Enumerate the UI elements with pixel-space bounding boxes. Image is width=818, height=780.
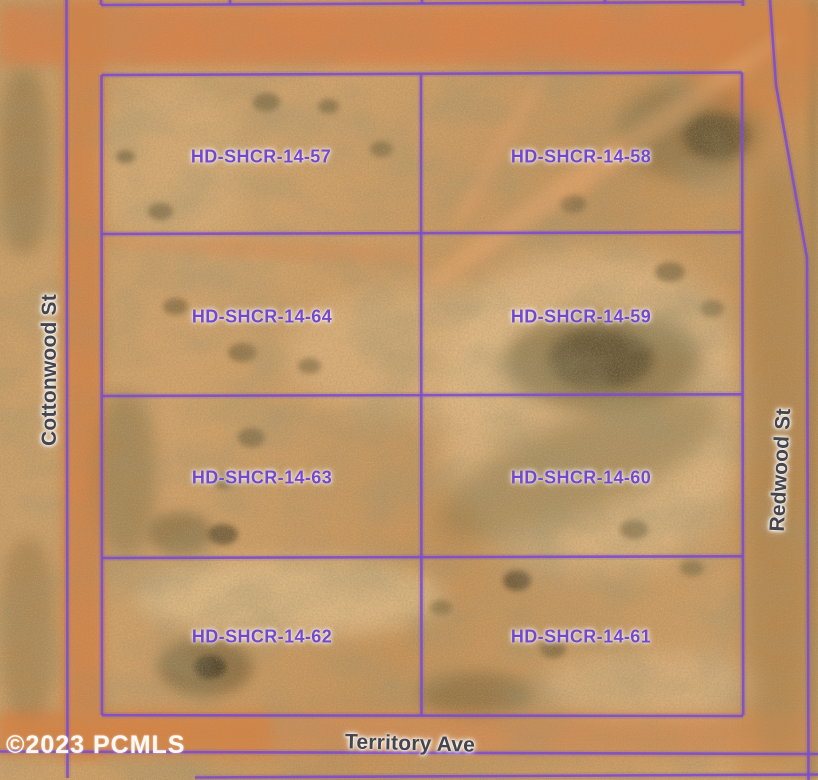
parcel-label: HD-SHCR-14-57	[191, 147, 331, 168]
parcel-label: HD-SHCR-14-63	[192, 468, 332, 489]
street-label-territory: Territory Ave	[345, 730, 476, 757]
watermark: ©2023 PCMLS	[6, 731, 185, 760]
parcel-label: HD-SHCR-14-59	[511, 307, 651, 328]
map-canvas: HD-SHCR-14-57 HD-SHCR-14-58 HD-SHCR-14-6…	[0, 0, 818, 780]
parcel-label: HD-SHCR-14-60	[511, 468, 651, 489]
parcel-label: HD-SHCR-14-62	[192, 627, 332, 648]
parcel-label: HD-SHCR-14-61	[511, 627, 651, 648]
street-label-cottonwood: Cottonwood St	[38, 294, 62, 446]
parcel-boundary-lines	[0, 0, 818, 780]
parcel-label: HD-SHCR-14-58	[511, 147, 651, 168]
parcel-label: HD-SHCR-14-64	[192, 307, 332, 328]
